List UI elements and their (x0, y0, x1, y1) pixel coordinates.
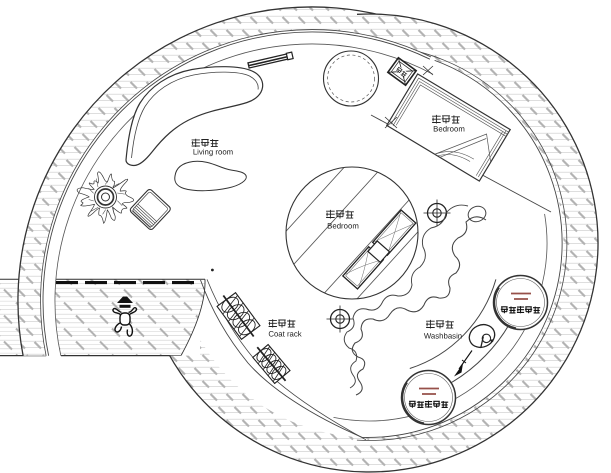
svg-text:Bedroom: Bedroom (327, 222, 359, 231)
svg-text:Washbasin: Washbasin (424, 332, 462, 341)
svg-text:Coat rack: Coat rack (268, 330, 301, 339)
svg-text:Living room: Living room (193, 148, 233, 157)
svg-text:Bedroom: Bedroom (433, 125, 465, 134)
